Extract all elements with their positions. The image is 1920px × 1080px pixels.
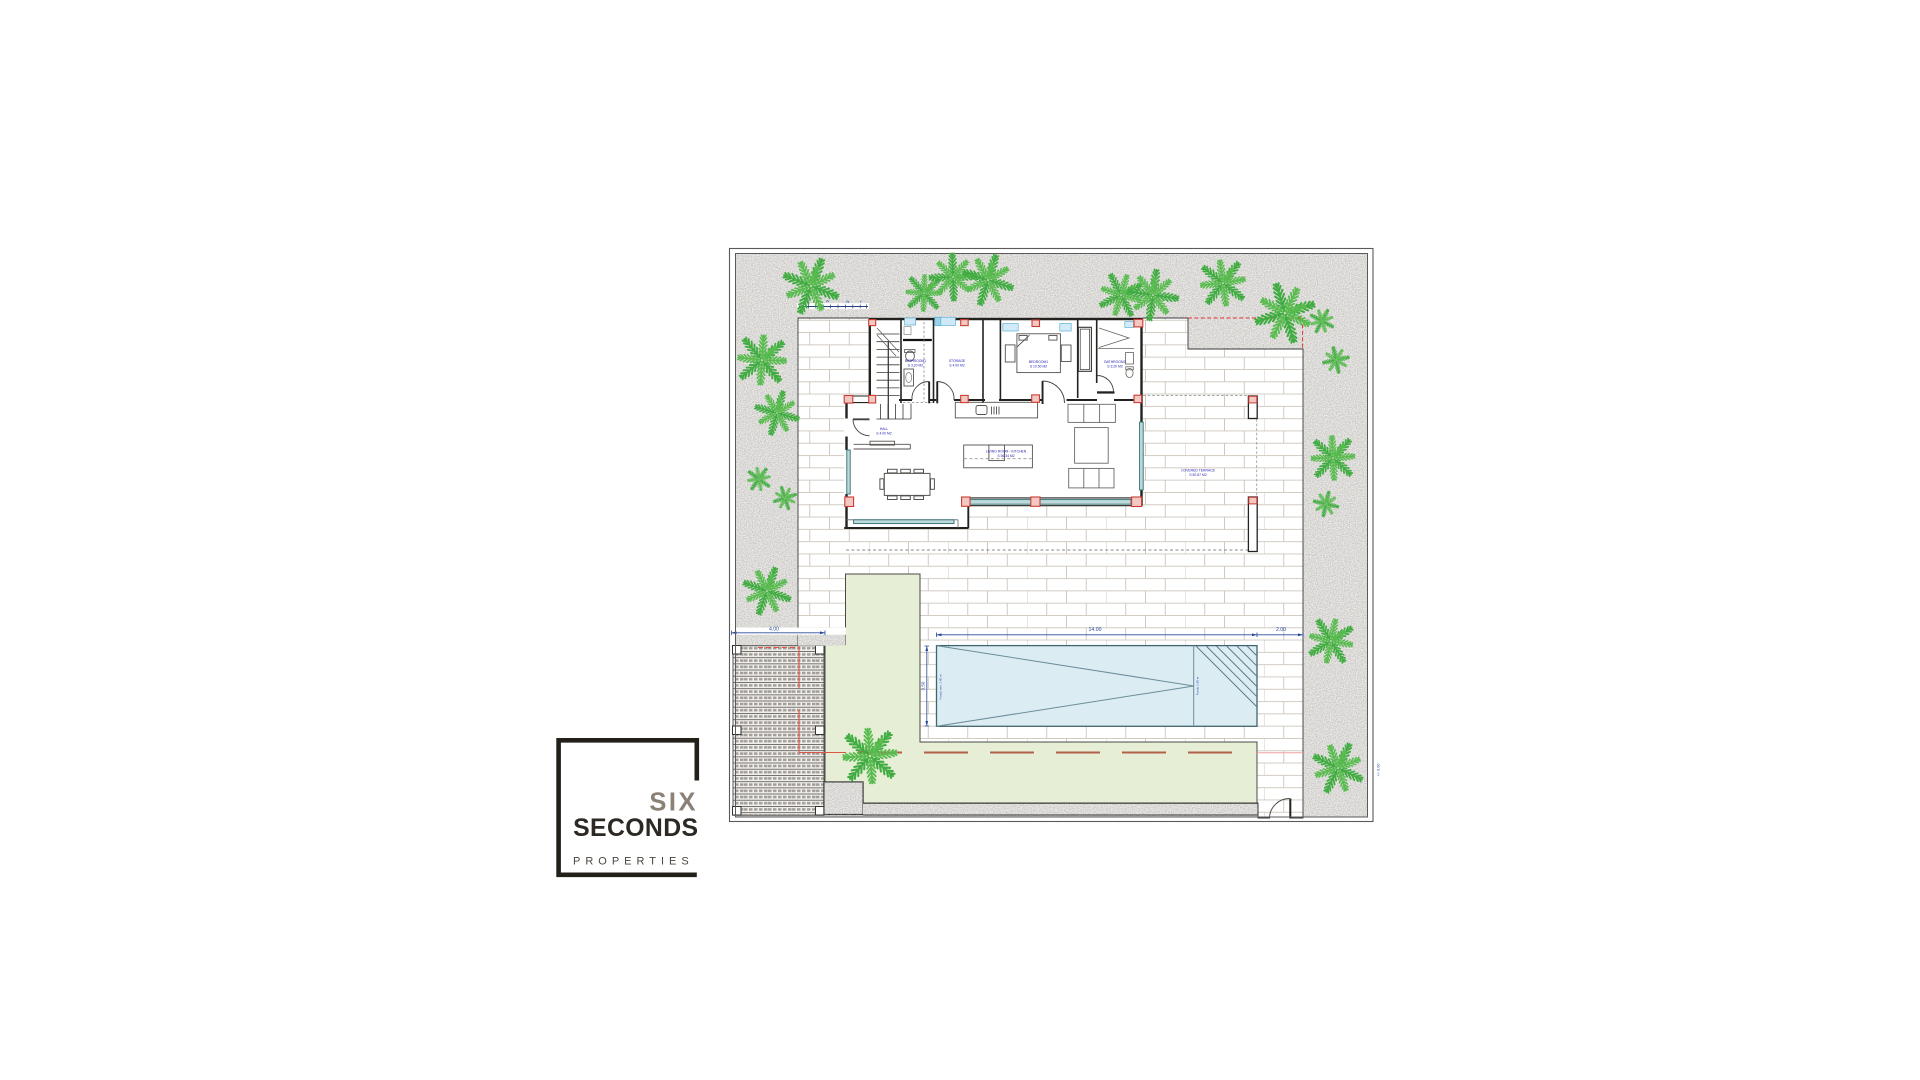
svg-text:2.00: 2.00 — [1276, 627, 1286, 633]
svg-text:BEDROOM1: BEDROOM1 — [1029, 360, 1049, 364]
svg-text:Fondo min. 1.40 m: Fondo min. 1.40 m — [939, 674, 943, 700]
svg-text:S 36.34 M2: S 36.34 M2 — [997, 454, 1014, 458]
svg-text:SIX: SIX — [649, 789, 698, 817]
svg-text:STORAGE: STORAGE — [949, 359, 966, 363]
svg-text:BATHROOM1: BATHROOM1 — [905, 359, 926, 363]
svg-text:BATHROOM2: BATHROOM2 — [1104, 360, 1125, 364]
svg-text:PROPERTIES: PROPERTIES — [573, 856, 694, 868]
svg-text:S 10.50 M2: S 10.50 M2 — [1030, 365, 1047, 369]
svg-text:+/- 0.00: +/- 0.00 — [1377, 764, 1381, 777]
svg-text:3.50: 3.50 — [921, 681, 926, 690]
svg-text:COVERED TERRACE: COVERED TERRACE — [1181, 469, 1216, 473]
svg-text:S 4.00 M2: S 4.00 M2 — [876, 432, 892, 436]
svg-text:S 4.00 M2: S 4.00 M2 — [949, 364, 965, 368]
svg-text:4.00: 4.00 — [769, 627, 779, 633]
svg-text:S 3.20 M2: S 3.20 M2 — [908, 364, 924, 368]
svg-text:LIVING ROOM - KITCHEN: LIVING ROOM - KITCHEN — [986, 450, 1027, 454]
svg-text:14.00: 14.00 — [1089, 627, 1102, 633]
svg-text:Fondo 1.90 m: Fondo 1.90 m — [1196, 676, 1200, 695]
svg-text:HALL: HALL — [880, 427, 889, 431]
svg-text:SECONDS: SECONDS — [573, 815, 698, 842]
svg-text:S 3.20 M2: S 3.20 M2 — [1107, 365, 1123, 369]
svg-text:S 50.87 M2: S 50.87 M2 — [1189, 473, 1206, 477]
